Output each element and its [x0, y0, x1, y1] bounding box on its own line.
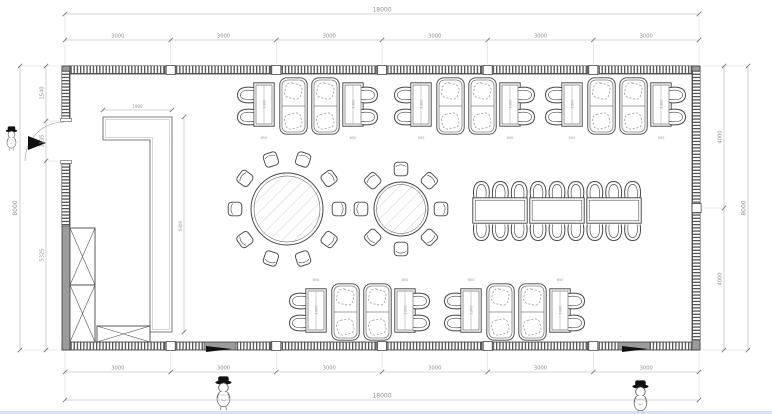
- dim-label: 1540: [40, 86, 46, 99]
- floor-plan-drawing: 18000 3000 3000 3000 3000 3000 3000 3000…: [0, 0, 772, 414]
- booth-row-top: [238, 78, 686, 134]
- dim-label: 1300: [352, 99, 356, 109]
- chair: [332, 202, 346, 216]
- dim-label: 3000: [428, 34, 441, 40]
- chair: [420, 228, 439, 247]
- chair: [262, 151, 279, 168]
- chair: [262, 250, 279, 267]
- dim-label: 650: [261, 136, 269, 140]
- dim-label: 1300: [660, 99, 664, 109]
- dim-label: 650: [468, 278, 476, 282]
- chair: [354, 202, 368, 216]
- table-section: [473, 198, 527, 223]
- chair: [295, 151, 312, 168]
- dim-label: 1300: [420, 99, 424, 109]
- mascot-figure: [215, 376, 231, 410]
- dim-label: 5300: [178, 220, 183, 231]
- dim-label: 3000: [323, 34, 336, 40]
- dim-label: 650: [557, 278, 565, 282]
- dim-label: 1300: [571, 99, 575, 109]
- dim-label: 18000: [372, 7, 391, 14]
- dim-label: 650: [350, 136, 358, 140]
- dimension-top: 18000 3000 3000 3000 3000 3000 3000: [63, 7, 701, 43]
- mascot-figure: [632, 380, 648, 414]
- dim-label: 1900: [132, 104, 143, 109]
- partition-wall: [103, 117, 172, 332]
- dim-label: 3000: [534, 34, 547, 40]
- banquet-chairs-bottom: [473, 225, 640, 241]
- dim-label: 650: [418, 136, 426, 140]
- dim-label: 650: [569, 136, 577, 140]
- dim-label: 3000: [428, 366, 441, 372]
- chair: [228, 202, 242, 216]
- booth-row-bottom: [290, 284, 585, 340]
- dim-label: 3000: [111, 34, 124, 40]
- dim-label: 3000: [323, 366, 336, 372]
- dim-label: 1300: [263, 99, 267, 109]
- dim-label: 3000: [640, 366, 653, 372]
- dim-label: 650: [658, 136, 666, 140]
- dimension-left: 8000 1540 1135 5325: [12, 64, 48, 352]
- dim-label: 4000: [718, 272, 724, 285]
- dim-label: 1300: [509, 99, 513, 109]
- dim-label: 3000: [217, 366, 230, 372]
- dim-label: 1300: [315, 305, 319, 315]
- banquet-chairs-top: [473, 182, 640, 198]
- dim-label: 1300: [470, 305, 474, 315]
- chair: [235, 230, 254, 249]
- chair: [394, 242, 408, 256]
- dim-label: 8000: [12, 200, 19, 215]
- chair: [320, 230, 339, 249]
- dimension-right: 4000 4000 8000: [718, 64, 751, 352]
- cabinets: [70, 228, 150, 342]
- round-table-large: [228, 151, 346, 267]
- dim-label: 8000: [741, 200, 748, 215]
- dim-label: 650: [507, 136, 515, 140]
- chair: [394, 162, 408, 176]
- chair: [420, 171, 439, 190]
- dim-label: 1300: [404, 305, 408, 315]
- dim-label: 4000: [718, 130, 724, 143]
- dim-label: 650: [313, 278, 321, 282]
- dim-label: 3000: [640, 34, 653, 40]
- round-table-small: [354, 162, 448, 256]
- entry-door: [25, 119, 72, 164]
- floor-plan-canvas: 18000 3000 3000 3000 3000 3000 3000 3000…: [0, 0, 772, 414]
- chair: [235, 169, 254, 188]
- mascot-figure: [6, 126, 18, 150]
- chair: [363, 171, 382, 190]
- table-section: [587, 198, 641, 223]
- table-section: [530, 198, 584, 223]
- dimension-bottom: 3000 3000 3000 3000 3000 3000 18000: [63, 366, 701, 403]
- dim-label: 3000: [217, 34, 230, 40]
- dim-label: 18000: [372, 393, 391, 400]
- chair: [434, 202, 448, 216]
- dim-label: 3000: [111, 366, 124, 372]
- banquet-table: [473, 182, 641, 241]
- dim-label: 650: [402, 278, 410, 282]
- dim-label: 5325: [40, 248, 46, 261]
- chair: [295, 250, 312, 267]
- dim-label: 1300: [559, 305, 563, 315]
- dim-label: 1135: [40, 134, 46, 147]
- chair: [363, 228, 382, 247]
- chair: [320, 169, 339, 188]
- dim-label: 3000: [534, 366, 547, 372]
